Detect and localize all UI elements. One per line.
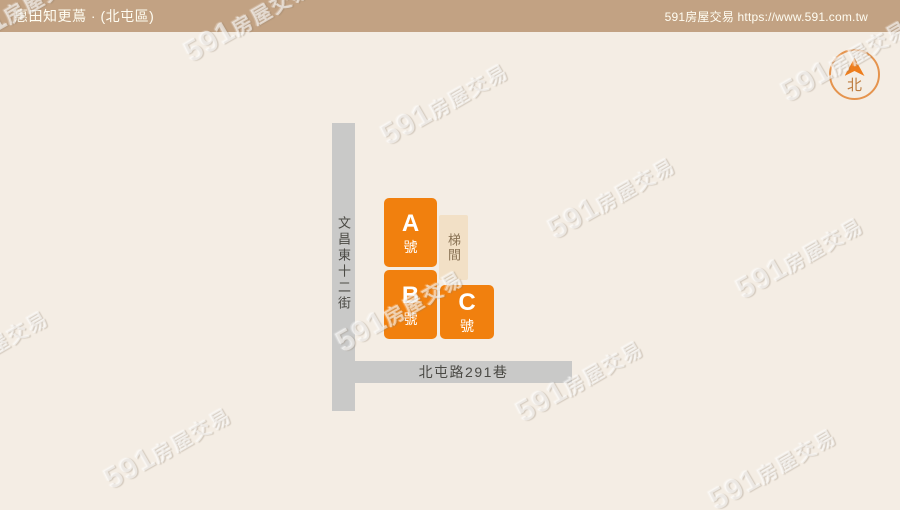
building-a: A 號	[384, 198, 437, 267]
building-a-unit: 號	[404, 240, 418, 254]
road-name-vertical: 文昌東十二街	[334, 216, 353, 318]
watermark: 591房屋交易	[0, 300, 55, 400]
building-a-letter: A	[402, 212, 419, 236]
stairwell-label: 梯間	[444, 233, 463, 263]
road-horizontal: 北屯路291巷	[355, 361, 572, 383]
building-c-letter: C	[458, 291, 475, 315]
building-c-unit: 號	[460, 319, 474, 333]
site-map-page: 惠田知更蔦 · (北屯區) 591房屋交易 https://www.591.co…	[0, 0, 900, 510]
watermark: 591房屋交易	[542, 147, 681, 247]
site-credit: 591房屋交易 https://www.591.com.tw	[665, 8, 868, 25]
road-vertical: 文昌東十二街	[332, 123, 355, 411]
north-arrow-icon	[845, 58, 865, 76]
compass: 北	[829, 49, 880, 100]
building-c: C 號	[440, 285, 494, 339]
page-title: 惠田知更蔦 · (北屯區)	[14, 6, 154, 26]
building-b-letter: B	[402, 284, 419, 308]
compass-north-label: 北	[847, 78, 862, 93]
road-name-horizontal: 北屯路291巷	[419, 362, 509, 382]
header-bar: 惠田知更蔦 · (北屯區) 591房屋交易 https://www.591.co…	[0, 0, 900, 32]
watermark: 591房屋交易	[375, 53, 514, 153]
watermark: 591房屋交易	[703, 418, 842, 510]
watermark: 591房屋交易	[730, 207, 869, 307]
watermark: 591房屋交易	[98, 397, 237, 497]
building-b: B 號	[384, 270, 437, 339]
building-b-unit: 號	[404, 312, 418, 326]
stairwell-block: 梯間	[439, 215, 468, 280]
